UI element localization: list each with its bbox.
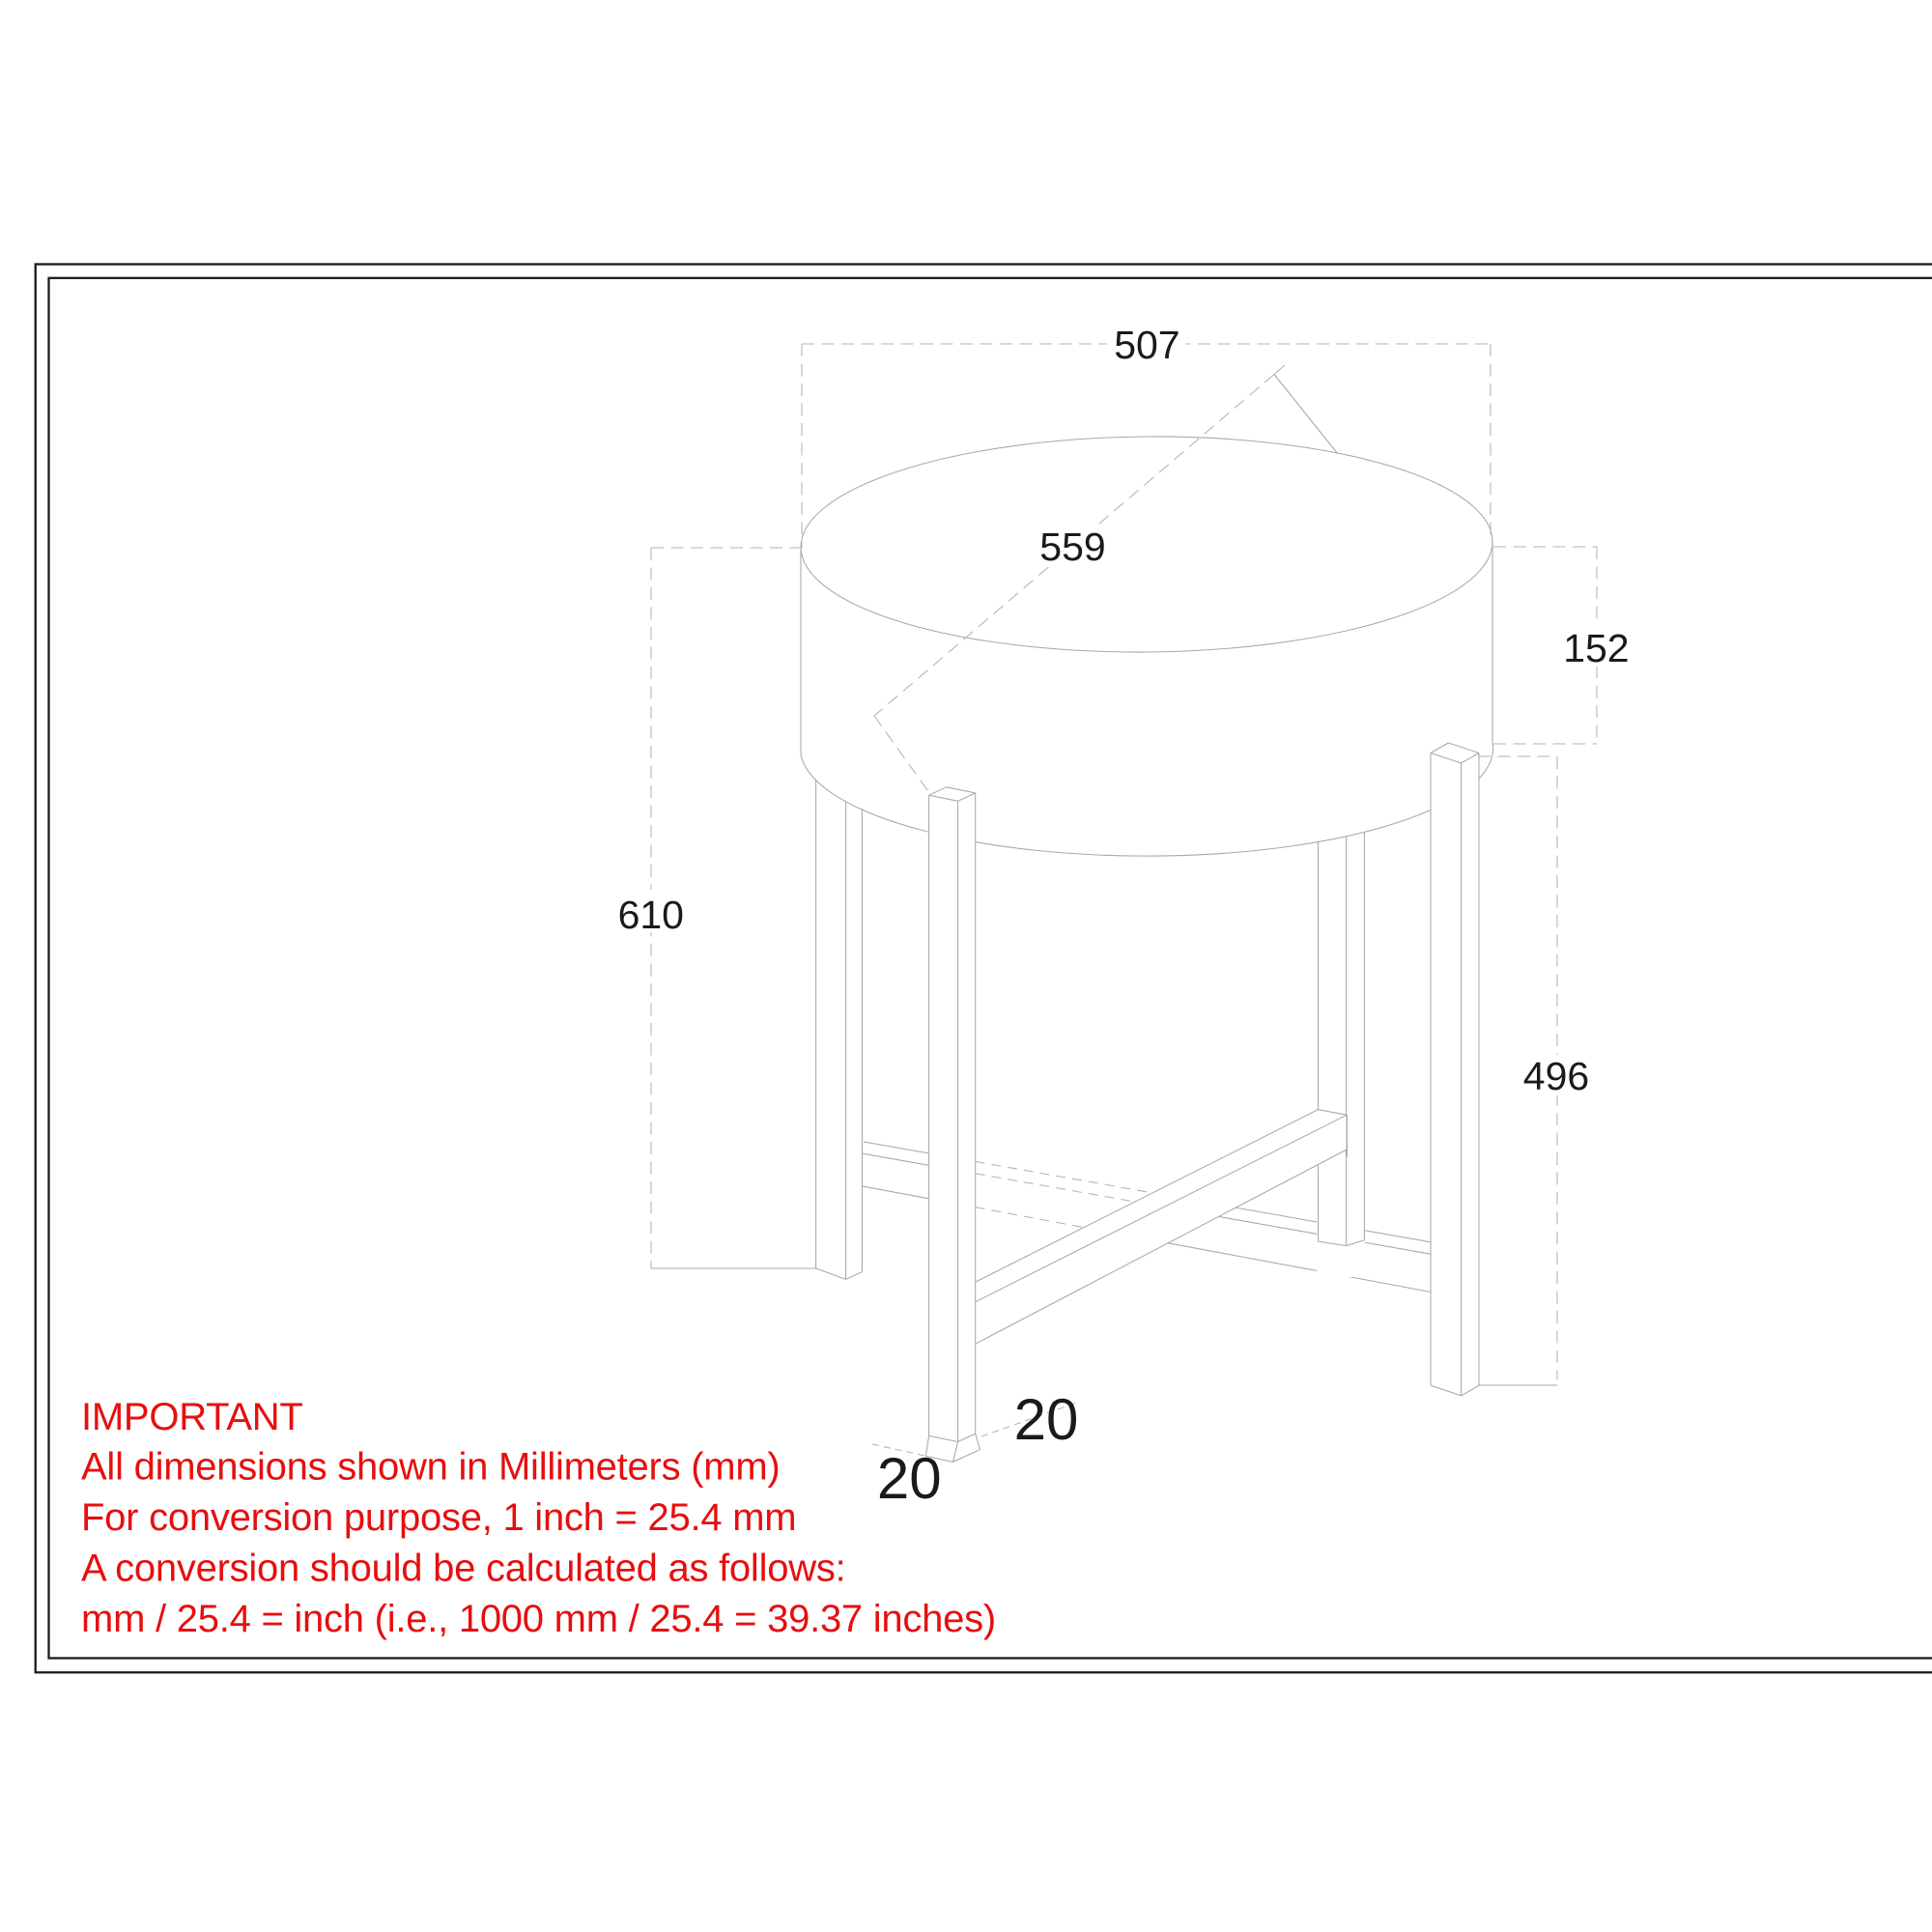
svg-text:496: 496 — [1523, 1054, 1589, 1098]
svg-text:For conversion purpose, 1 inch: For conversion purpose, 1 inch = 25.4 mm — [81, 1496, 796, 1539]
svg-text:152: 152 — [1563, 626, 1629, 670]
svg-text:All dimensions shown in Millim: All dimensions shown in Millimeters (mm) — [81, 1446, 781, 1489]
svg-text:A conversion should be calcula: A conversion should be calculated as fol… — [81, 1548, 845, 1590]
svg-text:mm / 25.4 = inch (i.e., 1000 m: mm / 25.4 = inch (i.e., 1000 mm / 25.4 =… — [81, 1598, 996, 1640]
svg-text:610: 610 — [618, 893, 684, 937]
svg-text:507: 507 — [1114, 323, 1179, 367]
svg-text:20: 20 — [877, 1446, 942, 1511]
svg-text:559: 559 — [1039, 525, 1105, 569]
svg-text:IMPORTANT: IMPORTANT — [81, 1396, 303, 1438]
svg-text:20: 20 — [1014, 1387, 1079, 1452]
